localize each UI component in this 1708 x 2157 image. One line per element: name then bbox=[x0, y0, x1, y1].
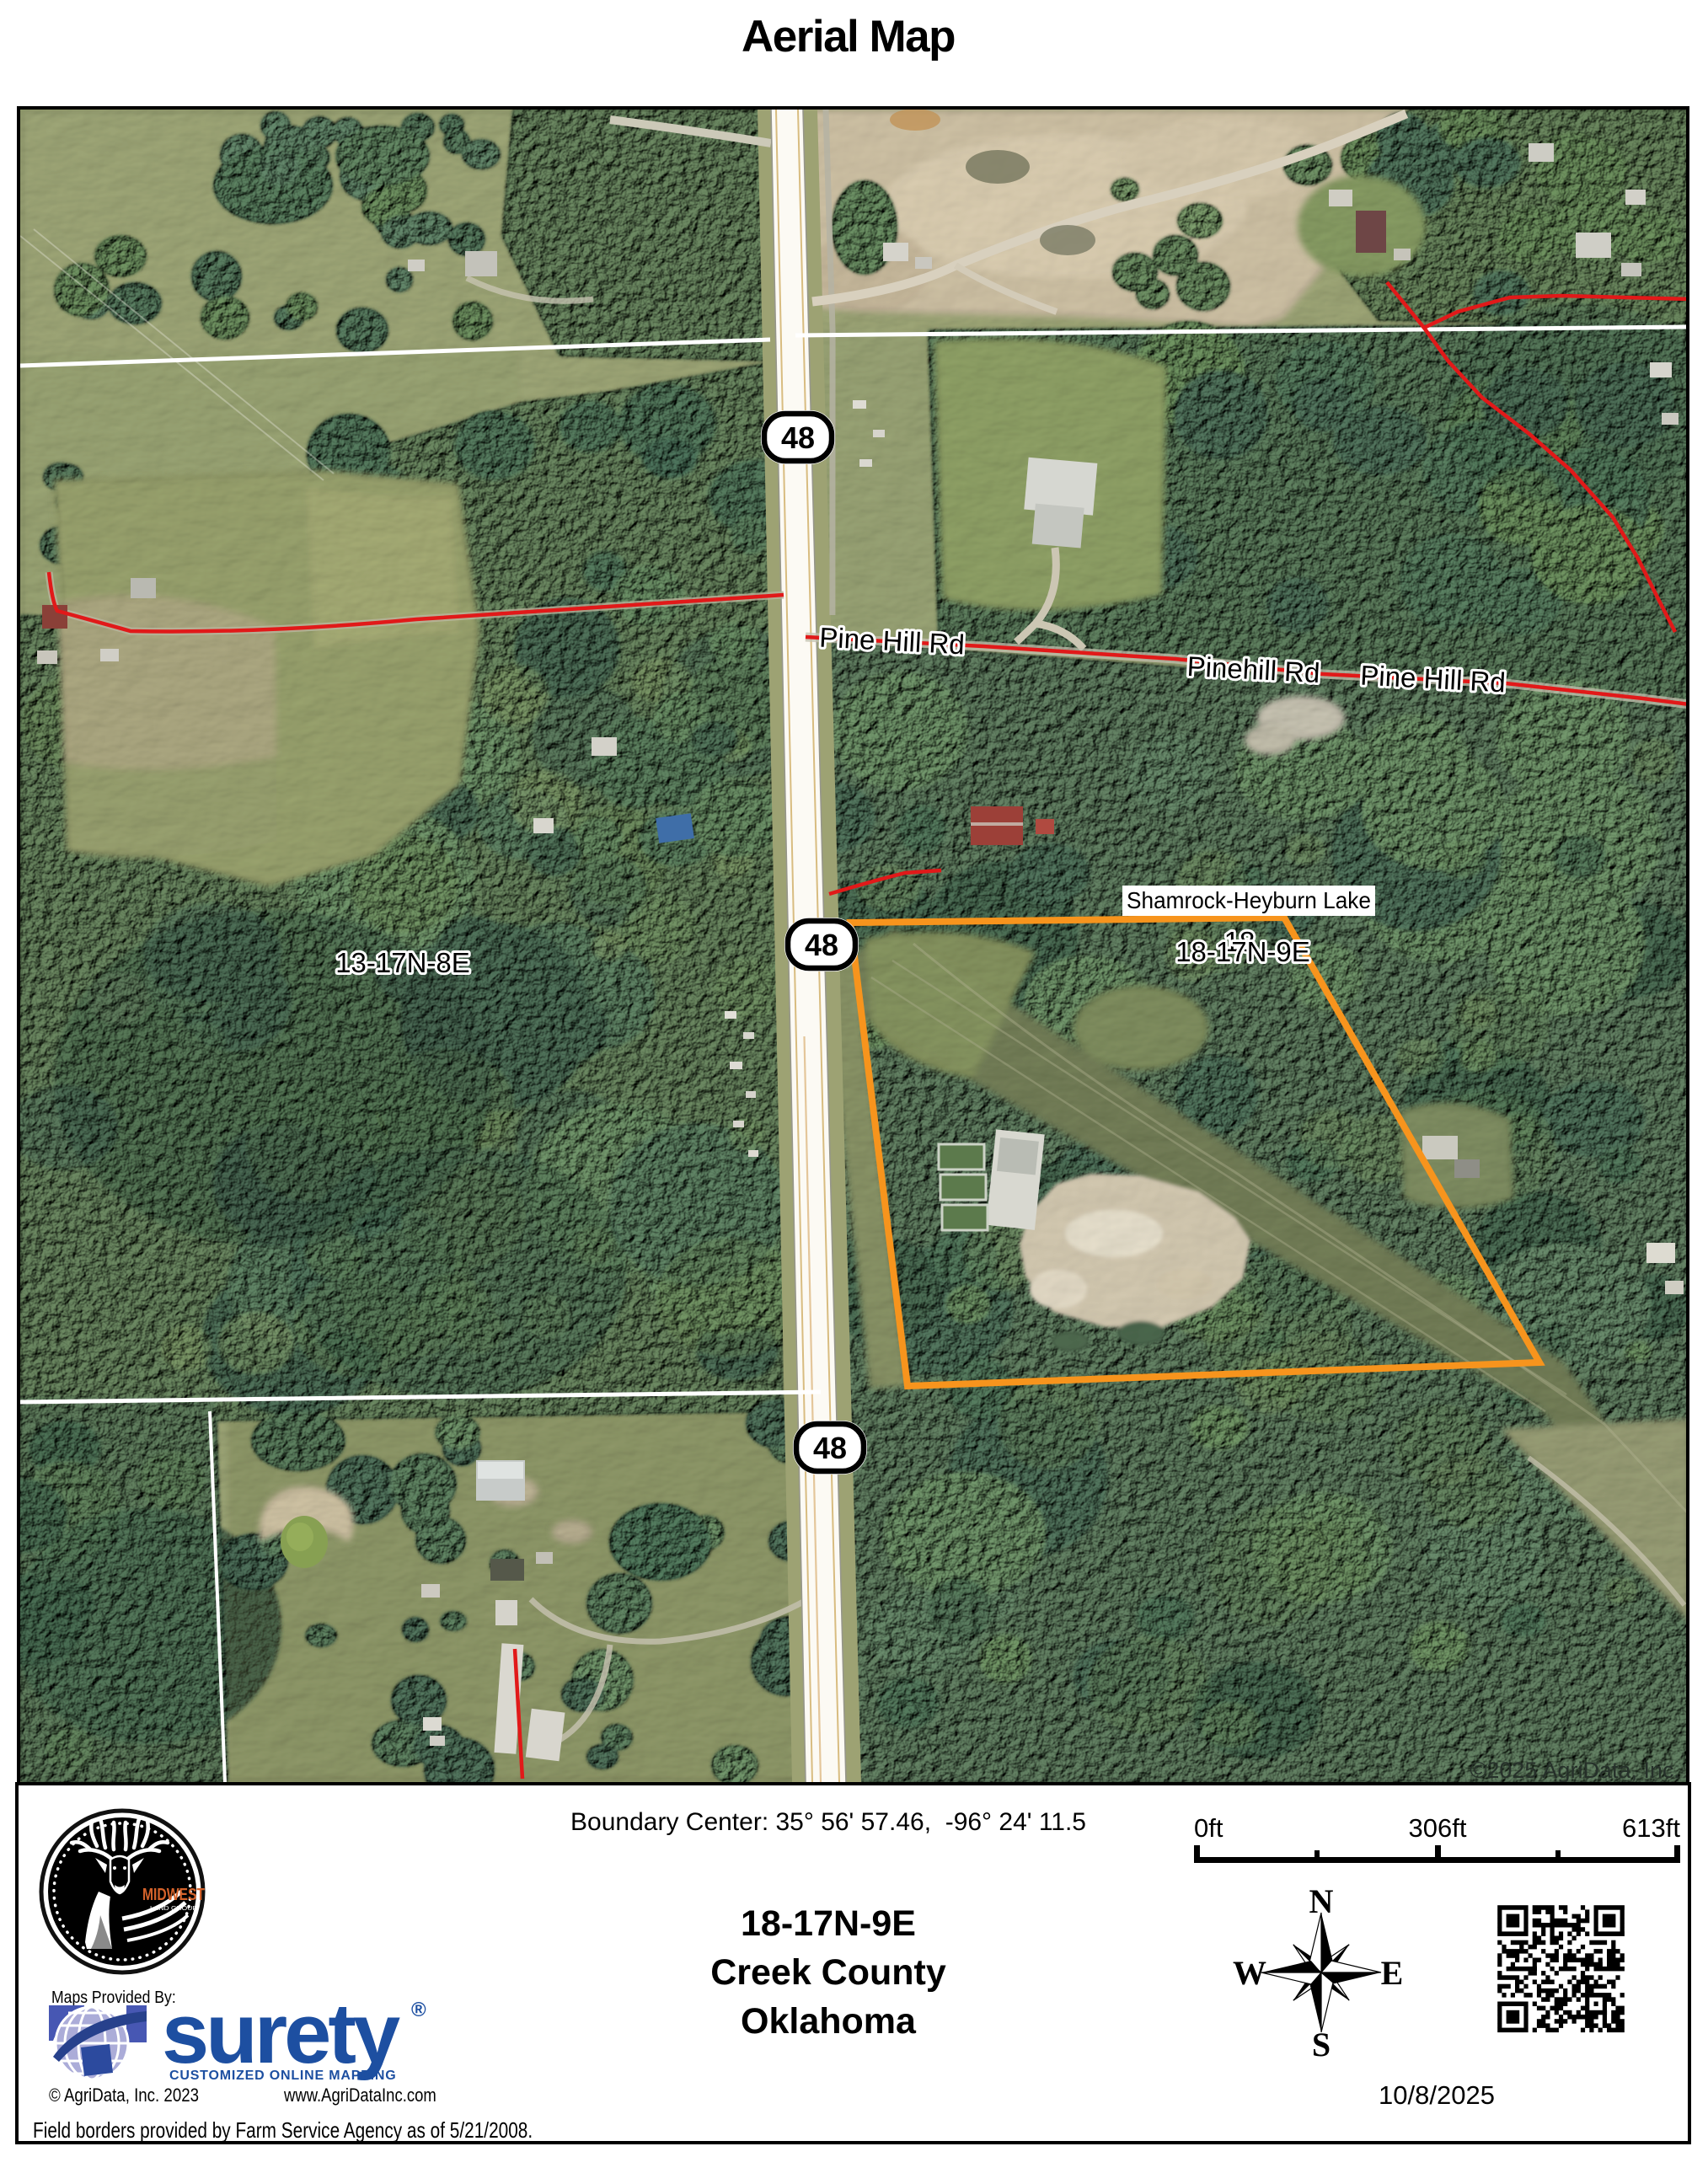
svg-text:S: S bbox=[1312, 2026, 1331, 2063]
svg-text:48: 48 bbox=[781, 420, 815, 455]
svg-text:18-17N-9E: 18-17N-9E bbox=[1175, 936, 1310, 967]
svg-text:Shamrock-Heyburn Lake: Shamrock-Heyburn Lake bbox=[1127, 887, 1371, 913]
svg-text:48: 48 bbox=[813, 1431, 847, 1465]
svg-text:613ft: 613ft bbox=[1622, 1813, 1680, 1843]
svg-text:0ft: 0ft bbox=[1194, 1813, 1223, 1843]
svg-text:©2025 AgriData, Inc.: ©2025 AgriData, Inc. bbox=[1470, 1758, 1680, 1782]
svg-text:13-17N-8E: 13-17N-8E bbox=[335, 947, 470, 978]
svg-text:306ft: 306ft bbox=[1409, 1813, 1467, 1843]
svg-text:N: N bbox=[1309, 1884, 1334, 1920]
svg-text:E: E bbox=[1381, 1954, 1404, 1992]
svg-text:48: 48 bbox=[805, 928, 838, 962]
svg-text:MIDWEST: MIDWEST bbox=[142, 1886, 205, 1904]
svg-text:W: W bbox=[1233, 1954, 1266, 1992]
svg-text:LAND GROUP: LAND GROUP bbox=[150, 1904, 197, 1912]
